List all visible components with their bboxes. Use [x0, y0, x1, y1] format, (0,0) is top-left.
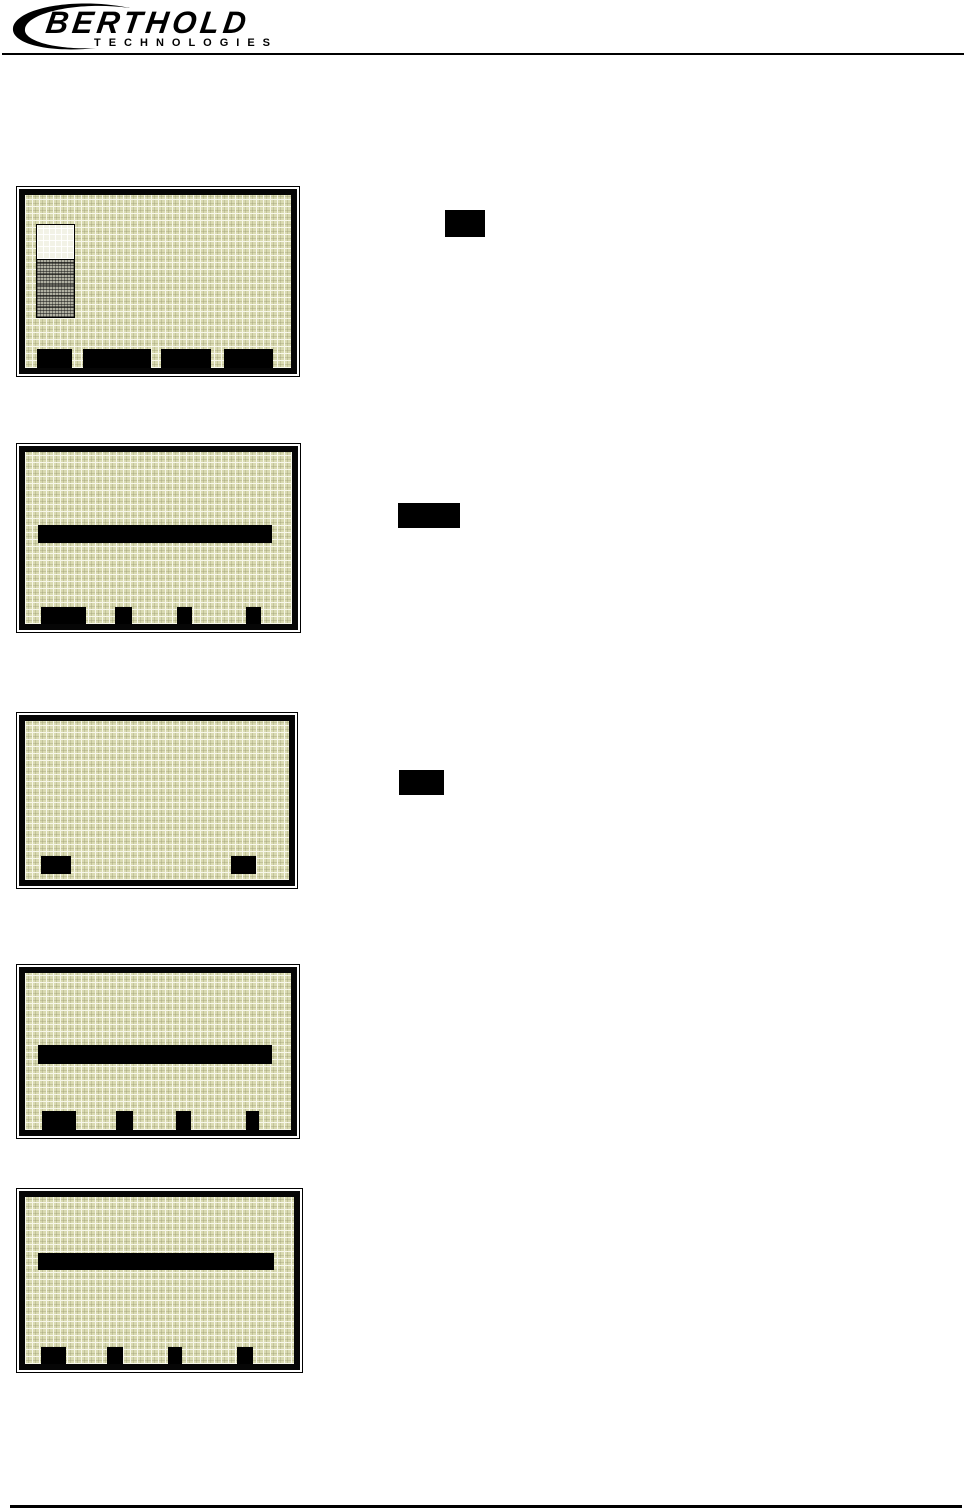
- selection-bar: [38, 525, 272, 543]
- softkey-1: [37, 349, 72, 368]
- header-rule: [2, 53, 964, 55]
- lcd-screen-1: [16, 186, 300, 377]
- softkey-4: [224, 349, 273, 368]
- key-callout-2: [398, 503, 460, 528]
- softkey-4: [246, 1111, 259, 1130]
- softkey-1: [41, 1347, 66, 1364]
- lcd-display-1: [19, 189, 297, 374]
- softkey-2: [116, 1111, 133, 1130]
- softkey-4: [237, 1347, 253, 1364]
- key-callout-1: [445, 210, 485, 237]
- softkey-3: [168, 1347, 182, 1364]
- softkey-3: [161, 349, 211, 368]
- softkey-2: [83, 349, 151, 368]
- softkey-1: [42, 1111, 76, 1130]
- tank-empty-section: [37, 225, 74, 259]
- berthold-logo: BERTHOLD TECHNOLOGIES: [8, 2, 308, 54]
- softkey-left: [41, 856, 71, 874]
- softkey-2: [107, 1347, 123, 1364]
- selection-bar: [38, 1045, 272, 1064]
- softkey-3: [176, 1111, 191, 1130]
- lcd-screen-5: [16, 1188, 303, 1373]
- tank-level-indicator: [36, 224, 75, 318]
- lcd-display-2: [19, 446, 298, 630]
- footer-rule: [10, 1505, 962, 1508]
- softkey-right: [231, 856, 256, 874]
- lcd-display-5: [19, 1191, 300, 1370]
- softkey-4: [246, 607, 261, 624]
- softkey-1: [41, 607, 86, 624]
- lcd-display-3: [19, 715, 295, 886]
- softkey-2: [115, 607, 132, 624]
- tank-fill-section: [37, 259, 74, 317]
- softkey-3: [177, 607, 192, 624]
- lcd-screen-3: [16, 712, 298, 889]
- brand-subtitle: TECHNOLOGIES: [94, 38, 278, 49]
- manual-page: BERTHOLD TECHNOLOGIES: [0, 0, 970, 1511]
- selection-bar: [38, 1253, 274, 1270]
- lcd-display-4: [19, 967, 297, 1136]
- key-callout-3: [399, 770, 444, 795]
- brand-name: BERTHOLD: [44, 7, 252, 38]
- lcd-screen-2: [16, 443, 301, 633]
- lcd-screen-4: [16, 964, 300, 1139]
